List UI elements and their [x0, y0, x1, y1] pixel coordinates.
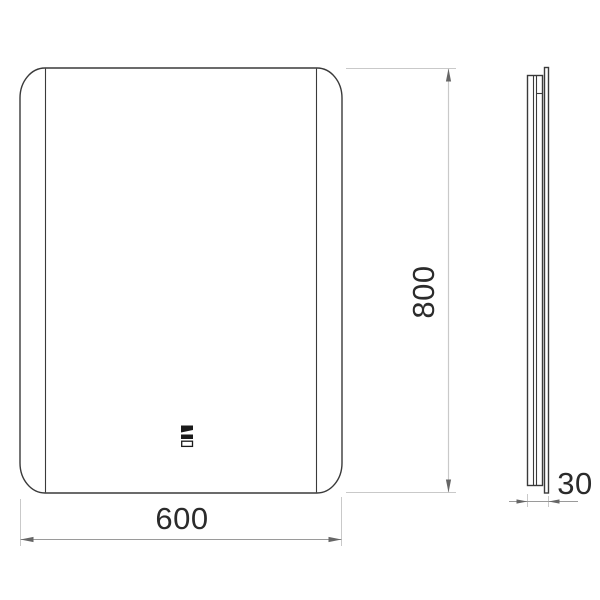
touch-sensor-icon: [181, 426, 193, 447]
height-dimension-label: 800: [406, 265, 441, 318]
side-view: [528, 68, 549, 494]
height-arrow-bottom-icon: [446, 480, 451, 493]
drawing-canvas: 600 800 30: [0, 0, 600, 600]
height-dimension: 800: [346, 69, 456, 493]
depth-dimension: 30: [509, 466, 593, 507]
touch-sensor-middle-bar: [181, 435, 193, 440]
height-arrow-top-icon: [446, 69, 451, 82]
width-dimension-label: 600: [155, 501, 208, 536]
technical-drawing: 600 800 30: [0, 0, 600, 600]
touch-sensor-top-bar: [181, 426, 193, 433]
front-view: [20, 68, 342, 493]
width-arrow-left-icon: [21, 537, 34, 542]
mirror-glass-profile: [545, 68, 549, 494]
depth-dimension-label: 30: [557, 466, 592, 501]
mirror-body-profile: [528, 76, 543, 486]
depth-arrow-left-icon: [517, 499, 528, 503]
touch-sensor-bottom-bar: [182, 441, 193, 446]
width-arrow-right-icon: [329, 537, 342, 542]
width-dimension: 600: [21, 497, 342, 546]
